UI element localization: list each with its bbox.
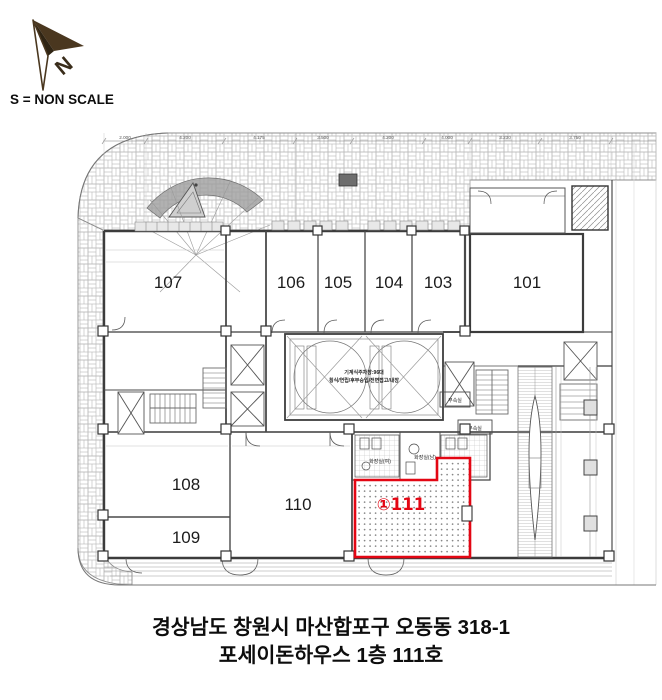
room-label-107: 107 — [154, 273, 182, 292]
toilet-label-men: 화장실(남) — [414, 454, 436, 461]
room-label-108: 108 — [172, 475, 200, 494]
dim-label: 3.500 — [317, 135, 329, 140]
elevator-icon — [231, 392, 264, 426]
scale-note: S = NON SCALE — [10, 92, 114, 107]
elevator-icon — [231, 345, 264, 385]
dim-label: 3.750 — [569, 135, 581, 140]
balcony-101 — [470, 188, 565, 233]
stair-run — [203, 368, 226, 408]
canopy-block — [339, 174, 357, 186]
parking-label-line2: 횡식/연립/후부승입/전면접고/내장 — [329, 377, 399, 384]
stair-run — [476, 370, 508, 414]
caption-address: 경상남도 창원시 마산합포구 오동동 318-1 — [152, 615, 510, 639]
north-arrow-icon: N — [33, 20, 84, 90]
room-label-105: 105 — [324, 273, 352, 292]
dim-label: 4.175 — [253, 135, 265, 140]
elevator-icon — [564, 342, 597, 380]
page: N S = NON SCALE 2.000 4.200 4.1 — [0, 0, 662, 700]
room-label-103: 103 — [424, 273, 452, 292]
mechanical-parking — [285, 334, 443, 420]
dim-label: 3.230 — [499, 135, 511, 140]
dim-label: 4.200 — [382, 135, 394, 140]
north-label: N — [51, 52, 77, 79]
floor-plan-drawing: N S = NON SCALE 2.000 4.200 4.1 — [0, 0, 662, 700]
room-label-110: 110 — [284, 495, 311, 514]
caption: 경상남도 창원시 마산합포구 오동동 318-1 포세이돈하우스 1층 111호 — [152, 615, 510, 667]
highlight-label: ①111 — [377, 495, 425, 514]
stair-run — [150, 394, 196, 423]
dim-label: 2.000 — [119, 135, 131, 140]
dim-label: 4.200 — [179, 135, 191, 140]
annex-label-1: 부속실 — [448, 397, 462, 404]
room-label-109: 109 — [172, 528, 200, 547]
room-label-106: 106 — [277, 273, 305, 292]
room-label-104: 104 — [375, 273, 403, 292]
caption-unit: 포세이돈하우스 1층 111호 — [219, 644, 444, 667]
room-label-101: 101 — [513, 273, 541, 292]
toilet-label-women: 화장실(여) — [369, 458, 391, 465]
elevator-icon — [118, 392, 144, 434]
car-ramp — [518, 367, 597, 557]
planter-block — [572, 186, 608, 230]
dim-label: 4.000 — [441, 135, 453, 140]
parking-label-line1: 기계식주차장:96대 — [344, 369, 384, 376]
